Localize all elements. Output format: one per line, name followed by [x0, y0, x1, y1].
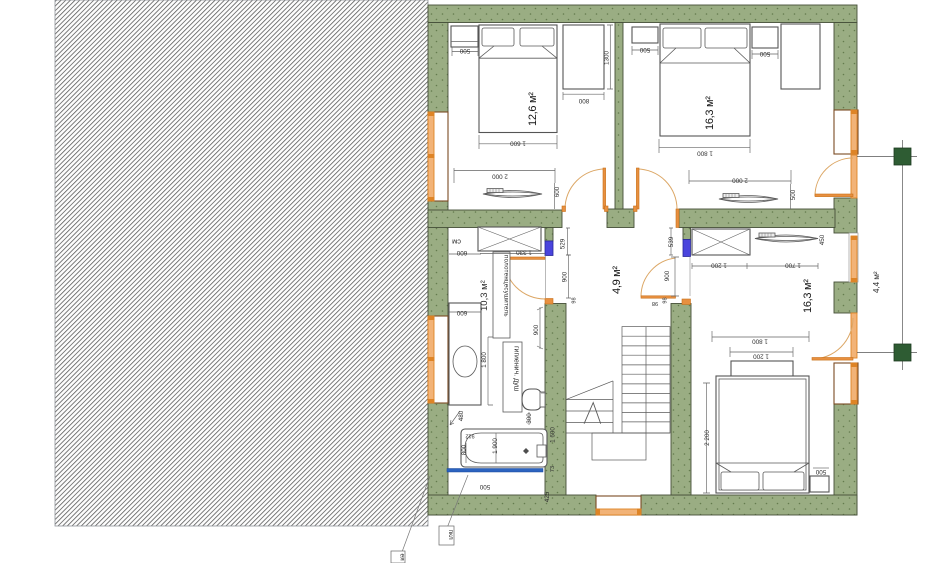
svg-text:16,3 м²: 16,3 м²: [704, 96, 716, 130]
svg-text:900: 900: [562, 271, 569, 282]
svg-text:98: 98: [572, 297, 578, 303]
svg-text:1 330: 1 330: [516, 249, 532, 256]
svg-text:см: см: [452, 238, 461, 247]
svg-text:12,6 м²: 12,6 м²: [527, 92, 539, 126]
svg-text:900: 900: [533, 324, 540, 335]
svg-text:1 800: 1 800: [697, 150, 713, 157]
svg-text:529: 529: [560, 238, 567, 249]
svg-text:500: 500: [790, 189, 797, 200]
svg-text:1 900: 1 900: [492, 438, 499, 454]
svg-text:16,3 м²: 16,3 м²: [802, 279, 814, 313]
svg-text:1 200: 1 200: [711, 262, 727, 269]
svg-text:73: 73: [550, 466, 556, 472]
svg-text:800: 800: [461, 444, 468, 455]
svg-text:пкл: пкл: [447, 530, 454, 540]
svg-text:912: 912: [465, 433, 474, 439]
svg-text:1 800: 1 800: [752, 338, 768, 345]
svg-text:ея: ея: [399, 554, 406, 562]
svg-text:500: 500: [459, 47, 470, 54]
svg-text:1 700: 1 700: [785, 262, 801, 269]
svg-text:600: 600: [554, 186, 561, 197]
svg-text:1 200: 1 200: [753, 353, 769, 360]
svg-text:480: 480: [458, 410, 465, 421]
svg-text:900: 900: [664, 270, 671, 281]
svg-text:1300: 1300: [604, 51, 611, 66]
svg-text:425: 425: [544, 491, 551, 502]
svg-text:2 000: 2 000: [492, 173, 508, 180]
svg-text:500: 500: [639, 46, 650, 53]
svg-text:800: 800: [578, 97, 589, 104]
svg-text:539: 539: [668, 236, 675, 247]
svg-text:300: 300: [526, 413, 533, 424]
svg-text:600: 600: [456, 309, 467, 316]
svg-text:10,3 м²: 10,3 м²: [479, 280, 490, 311]
svg-text:1 800: 1 800: [481, 352, 488, 368]
svg-text:полотенцесушитель: полотенцесушитель: [503, 255, 510, 317]
svg-text:1 600: 1 600: [550, 427, 557, 443]
svg-text:98: 98: [652, 300, 658, 306]
svg-text:гигиенич. душ: гигиенич. душ: [513, 346, 520, 392]
svg-text:4,4 м²: 4,4 м²: [872, 271, 881, 293]
svg-text:98: 98: [663, 297, 669, 303]
svg-text:450: 450: [819, 234, 826, 245]
svg-text:500: 500: [479, 483, 490, 490]
svg-text:4,9 м²: 4,9 м²: [611, 266, 623, 294]
svg-text:1 600: 1 600: [510, 140, 526, 147]
svg-text:600: 600: [456, 249, 467, 256]
svg-text:2 200: 2 200: [704, 430, 711, 446]
svg-text:2 000: 2 000: [732, 177, 748, 184]
svg-text:500: 500: [815, 468, 826, 475]
svg-text:500: 500: [759, 50, 770, 57]
